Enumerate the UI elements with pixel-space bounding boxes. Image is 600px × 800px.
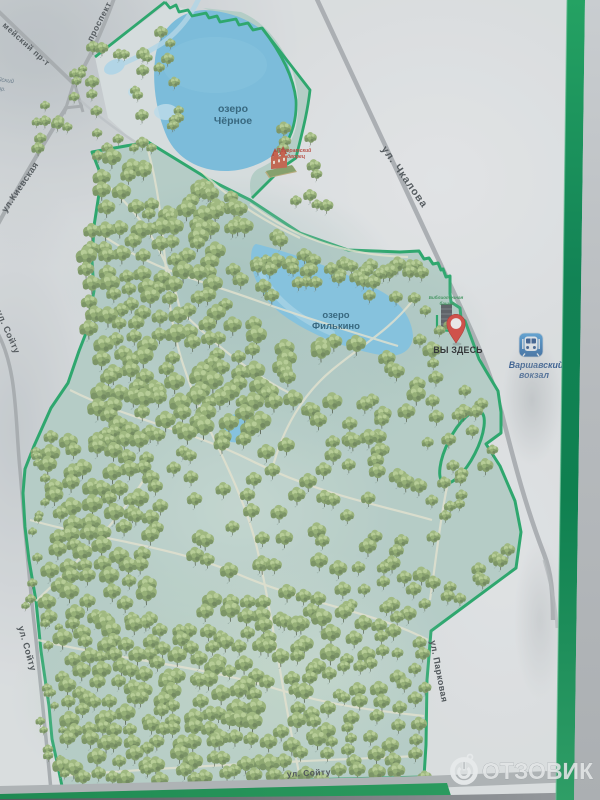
svg-text:ОТЗОВИК: ОТЗОВИК xyxy=(482,758,594,784)
